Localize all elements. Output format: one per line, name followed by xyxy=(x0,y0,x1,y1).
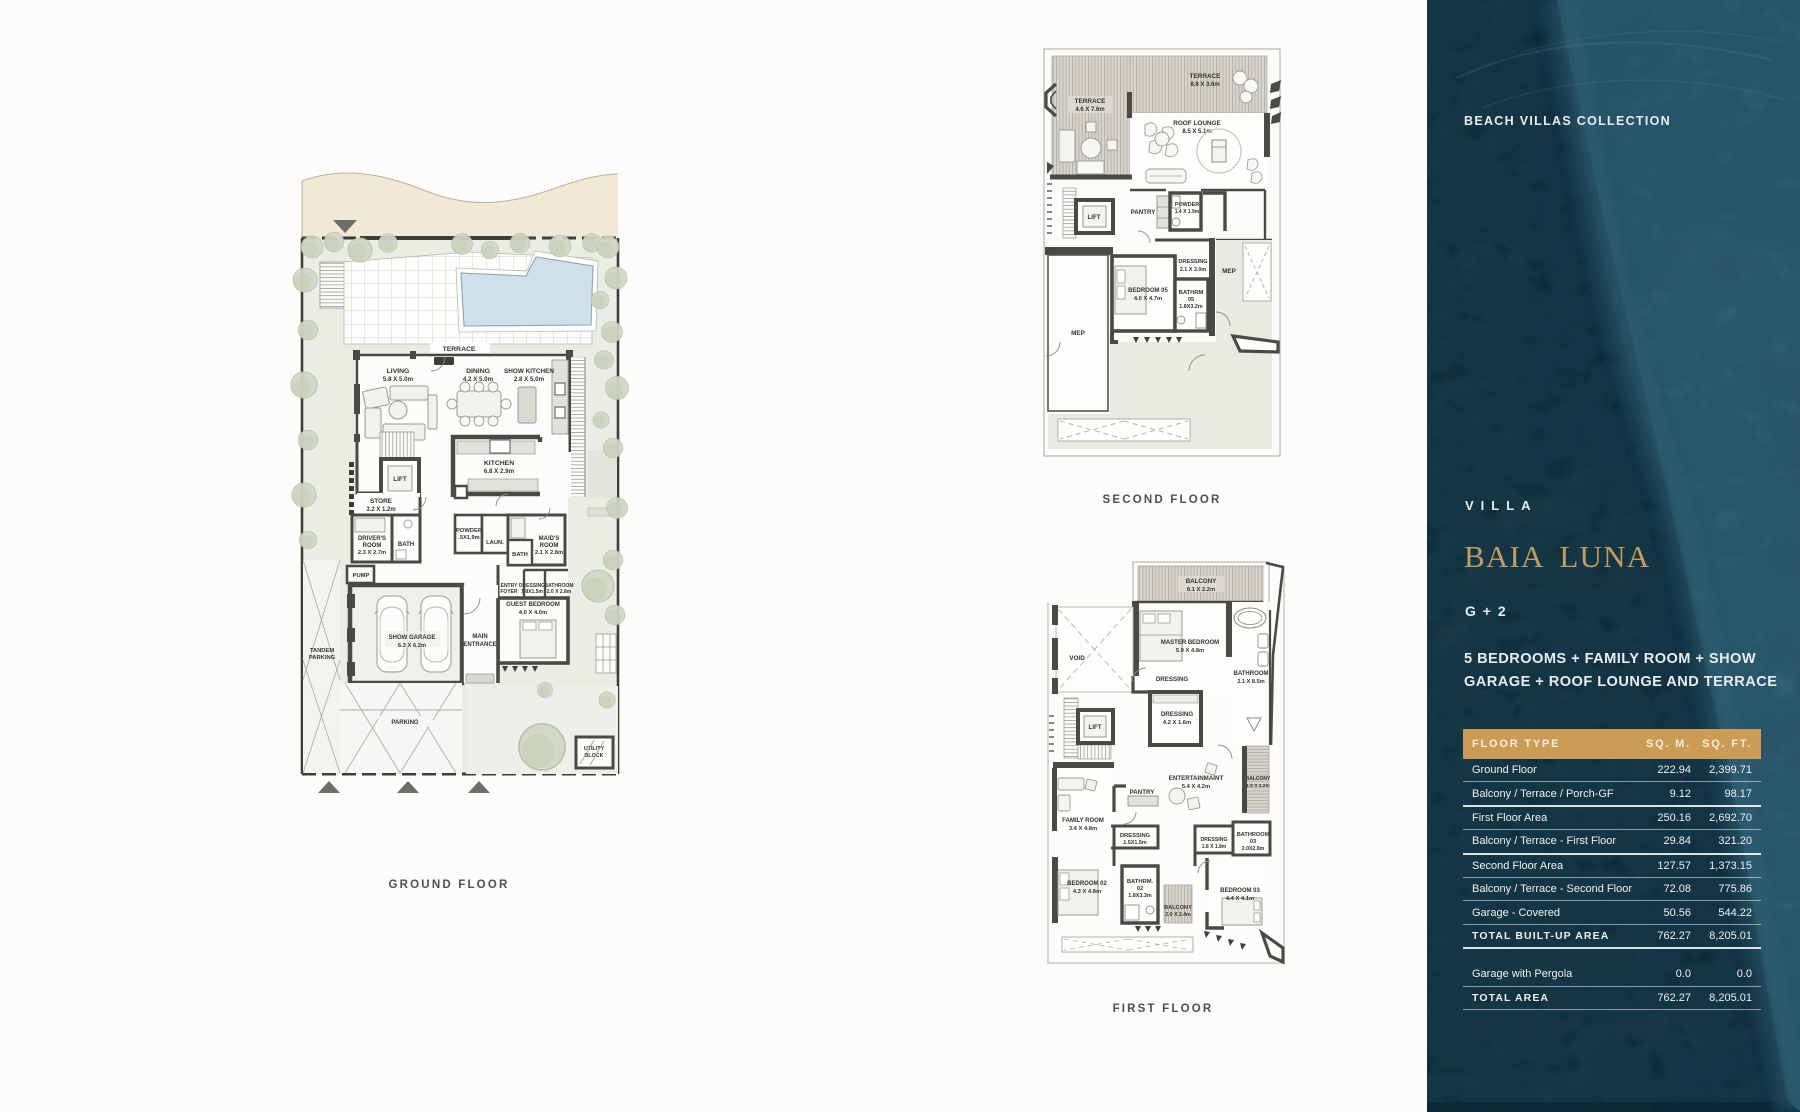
svg-text:03: 03 xyxy=(1250,839,1256,845)
svg-text:KITCHEN: KITCHEN xyxy=(484,460,514,467)
svg-text:BATHROOM: BATHROOM xyxy=(1234,671,1269,677)
svg-text:4.2 X 1.6m: 4.2 X 1.6m xyxy=(1163,720,1191,726)
svg-text:ENTRANCE: ENTRANCE xyxy=(463,642,496,648)
svg-text:TERRACE: TERRACE xyxy=(1190,73,1222,80)
svg-text:ROOM: ROOM xyxy=(540,543,559,549)
svg-text:6.3 X 6.2m: 6.3 X 6.2m xyxy=(398,643,426,649)
svg-text:4.0 X 4.7m: 4.0 X 4.7m xyxy=(1134,296,1162,302)
svg-text:TERRACE: TERRACE xyxy=(443,346,476,353)
svg-text:BATHROOM: BATHROOM xyxy=(1237,832,1270,838)
svg-text:FAMILY ROOM: FAMILY ROOM xyxy=(1062,818,1104,824)
svg-text:2.1 X 2.8m: 2.1 X 2.8m xyxy=(535,550,563,556)
svg-text:1.8 X 1.8m: 1.8 X 1.8m xyxy=(1202,844,1227,850)
svg-text:LIFT: LIFT xyxy=(1087,214,1100,221)
svg-text:MEP: MEP xyxy=(1071,330,1086,337)
svg-text:DRESSING: DRESSING xyxy=(1200,837,1227,843)
svg-text:GROUND FLOOR: GROUND FLOOR xyxy=(389,879,510,891)
svg-text:1.4 X 1.9m: 1.4 X 1.9m xyxy=(1175,209,1200,215)
svg-text:8.8 X 3.6m: 8.8 X 3.6m xyxy=(1190,82,1219,88)
svg-text:BATHRM.: BATHRM. xyxy=(1127,879,1154,885)
svg-text:2.1 X 3.0m: 2.1 X 3.0m xyxy=(1180,267,1207,273)
svg-text:FOYER: FOYER xyxy=(500,589,518,595)
svg-text:5.9 X 4.8m: 5.9 X 4.8m xyxy=(1176,648,1204,654)
svg-text:2.3 X 2.7m: 2.3 X 2.7m xyxy=(358,550,386,556)
svg-text:LIFT: LIFT xyxy=(393,476,407,483)
svg-text:1.8X3.3m: 1.8X3.3m xyxy=(1128,893,1152,899)
svg-text:MAIN: MAIN xyxy=(472,634,487,640)
svg-text:BALCONY: BALCONY xyxy=(1164,905,1192,911)
svg-text:SHOW KITCHEN: SHOW KITCHEN xyxy=(504,368,554,375)
svg-text:MAID'S: MAID'S xyxy=(539,536,560,542)
svg-text:4.3 X 4.8m: 4.3 X 4.8m xyxy=(1073,889,1101,895)
svg-text:05: 05 xyxy=(1188,297,1195,303)
svg-text:.5X1.9m: .5X1.9m xyxy=(458,535,479,541)
svg-text:BEDROOM 03: BEDROOM 03 xyxy=(1220,888,1260,894)
svg-text:SECOND FLOOR: SECOND FLOOR xyxy=(1102,494,1221,506)
svg-text:LIFT: LIFT xyxy=(1088,724,1101,731)
svg-text:PUMP: PUMP xyxy=(353,573,370,579)
svg-text:DRESSING: DRESSING xyxy=(1120,833,1151,839)
svg-text:5.8 X 5.0m: 5.8 X 5.0m xyxy=(383,376,414,383)
svg-text:6.8 X 2.9m: 6.8 X 2.9m xyxy=(484,468,515,475)
svg-text:FIRST FLOOR: FIRST FLOOR xyxy=(1113,1003,1214,1015)
svg-text:BEDROOM 05: BEDROOM 05 xyxy=(1128,288,1168,294)
svg-text:TANDEM: TANDEM xyxy=(310,648,335,654)
svg-text:VOID: VOID xyxy=(1069,655,1085,662)
svg-text:2.1 X 8.5m: 2.1 X 8.5m xyxy=(1237,679,1264,685)
svg-text:BATHRM: BATHRM xyxy=(1179,290,1204,296)
svg-text:DRIVER'S: DRIVER'S xyxy=(358,536,386,542)
svg-text:LAUN.: LAUN. xyxy=(486,540,504,546)
svg-text:PARKING: PARKING xyxy=(391,720,419,726)
svg-text:2.8 X 5.0m: 2.8 X 5.0m xyxy=(514,376,545,383)
svg-text:2.0X2.8m: 2.0X2.8m xyxy=(1242,846,1265,852)
svg-text:SHOW GARAGE: SHOW GARAGE xyxy=(389,635,436,641)
svg-text:1.5 X 4.2m: 1.5 X 4.2m xyxy=(1246,783,1269,789)
svg-text:DRESSING: DRESSING xyxy=(1178,259,1207,265)
svg-text:DRESSING: DRESSING xyxy=(1156,676,1189,683)
svg-text:ROOF LOUNGE: ROOF LOUNGE xyxy=(1173,120,1221,127)
svg-text:PANTRY: PANTRY xyxy=(1131,209,1157,216)
svg-text:MEP: MEP xyxy=(1222,268,1237,275)
svg-text:1.8X3.2m: 1.8X3.2m xyxy=(1179,304,1203,310)
svg-text:8.1 X 2.2m: 8.1 X 2.2m xyxy=(1187,587,1215,593)
svg-text:2.0 X 2.4m: 2.0 X 2.4m xyxy=(1165,912,1191,918)
svg-text:DRESSING: DRESSING xyxy=(1161,711,1194,718)
svg-text:BATH: BATH xyxy=(398,542,414,548)
svg-text:BALCONY: BALCONY xyxy=(1246,776,1271,782)
svg-text:02: 02 xyxy=(1137,886,1143,892)
svg-text:4.4 X 4.1m: 4.4 X 4.1m xyxy=(1226,896,1254,902)
svg-text:ROOM: ROOM xyxy=(363,543,382,549)
svg-text:3.4 X 4.8m: 3.4 X 4.8m xyxy=(1069,826,1097,832)
svg-text:2.0 X 2.8m: 2.0 X 2.8m xyxy=(547,589,572,595)
svg-text:UTILITY: UTILITY xyxy=(584,746,605,752)
svg-text:BALCONY: BALCONY xyxy=(1186,578,1217,585)
svg-text:ENTERTAINMAINT: ENTERTAINMAINT xyxy=(1169,775,1224,782)
svg-text:BEDROOM 02: BEDROOM 02 xyxy=(1067,881,1107,887)
svg-text:MASTER BEDROOM: MASTER BEDROOM xyxy=(1161,640,1219,646)
svg-text:BATH: BATH xyxy=(512,552,528,558)
svg-text:POWDER: POWDER xyxy=(456,528,483,534)
svg-text:POWDER: POWDER xyxy=(1175,202,1199,208)
svg-text:STORE: STORE xyxy=(370,498,393,505)
svg-text:LIVING: LIVING xyxy=(387,368,410,375)
svg-text:4.0 X 4.0m: 4.0 X 4.0m xyxy=(519,610,547,616)
svg-text:4.6 X 7.6m: 4.6 X 7.6m xyxy=(1075,107,1104,113)
svg-text:5.4 X 4.2m: 5.4 X 4.2m xyxy=(1182,784,1210,790)
svg-text:3.2 X 1.2m: 3.2 X 1.2m xyxy=(366,507,395,513)
svg-text:DINING: DINING xyxy=(466,368,490,375)
svg-text:PANTRY: PANTRY xyxy=(1130,789,1156,796)
svg-text:GUEST BEDROOM: GUEST BEDROOM xyxy=(506,602,560,608)
svg-text:PARKING: PARKING xyxy=(309,655,336,661)
svg-text:TERRACE: TERRACE xyxy=(1075,98,1107,105)
svg-text:1.5X1.5m: 1.5X1.5m xyxy=(1123,840,1147,846)
